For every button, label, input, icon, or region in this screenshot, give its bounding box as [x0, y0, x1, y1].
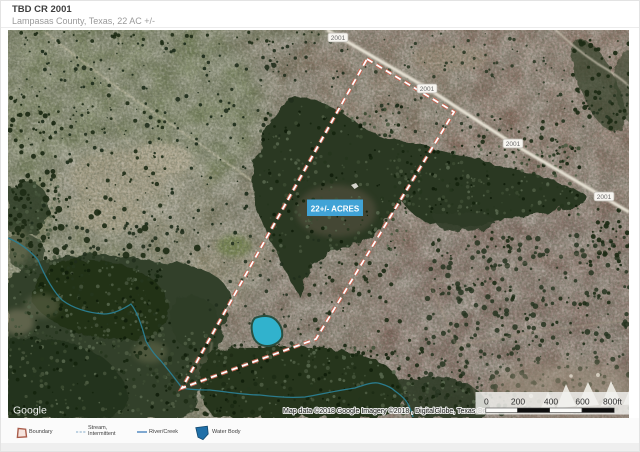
svg-text:200: 200 — [511, 397, 525, 407]
svg-text:2001: 2001 — [420, 86, 435, 93]
svg-text:Map data ©2018 Google Imagery: Map data ©2018 Google Imagery ©2018 , Di… — [283, 407, 486, 415]
svg-text:2001: 2001 — [331, 35, 346, 42]
svg-text:2001: 2001 — [597, 194, 612, 201]
svg-text:22+/- ACRES: 22+/- ACRES — [311, 205, 360, 214]
svg-text:0: 0 — [484, 397, 489, 407]
svg-text:800ft: 800ft — [603, 397, 623, 407]
svg-text:Google: Google — [13, 405, 47, 417]
svg-text:600: 600 — [575, 397, 589, 407]
svg-text:2001: 2001 — [506, 141, 521, 148]
svg-text:400: 400 — [544, 397, 558, 407]
